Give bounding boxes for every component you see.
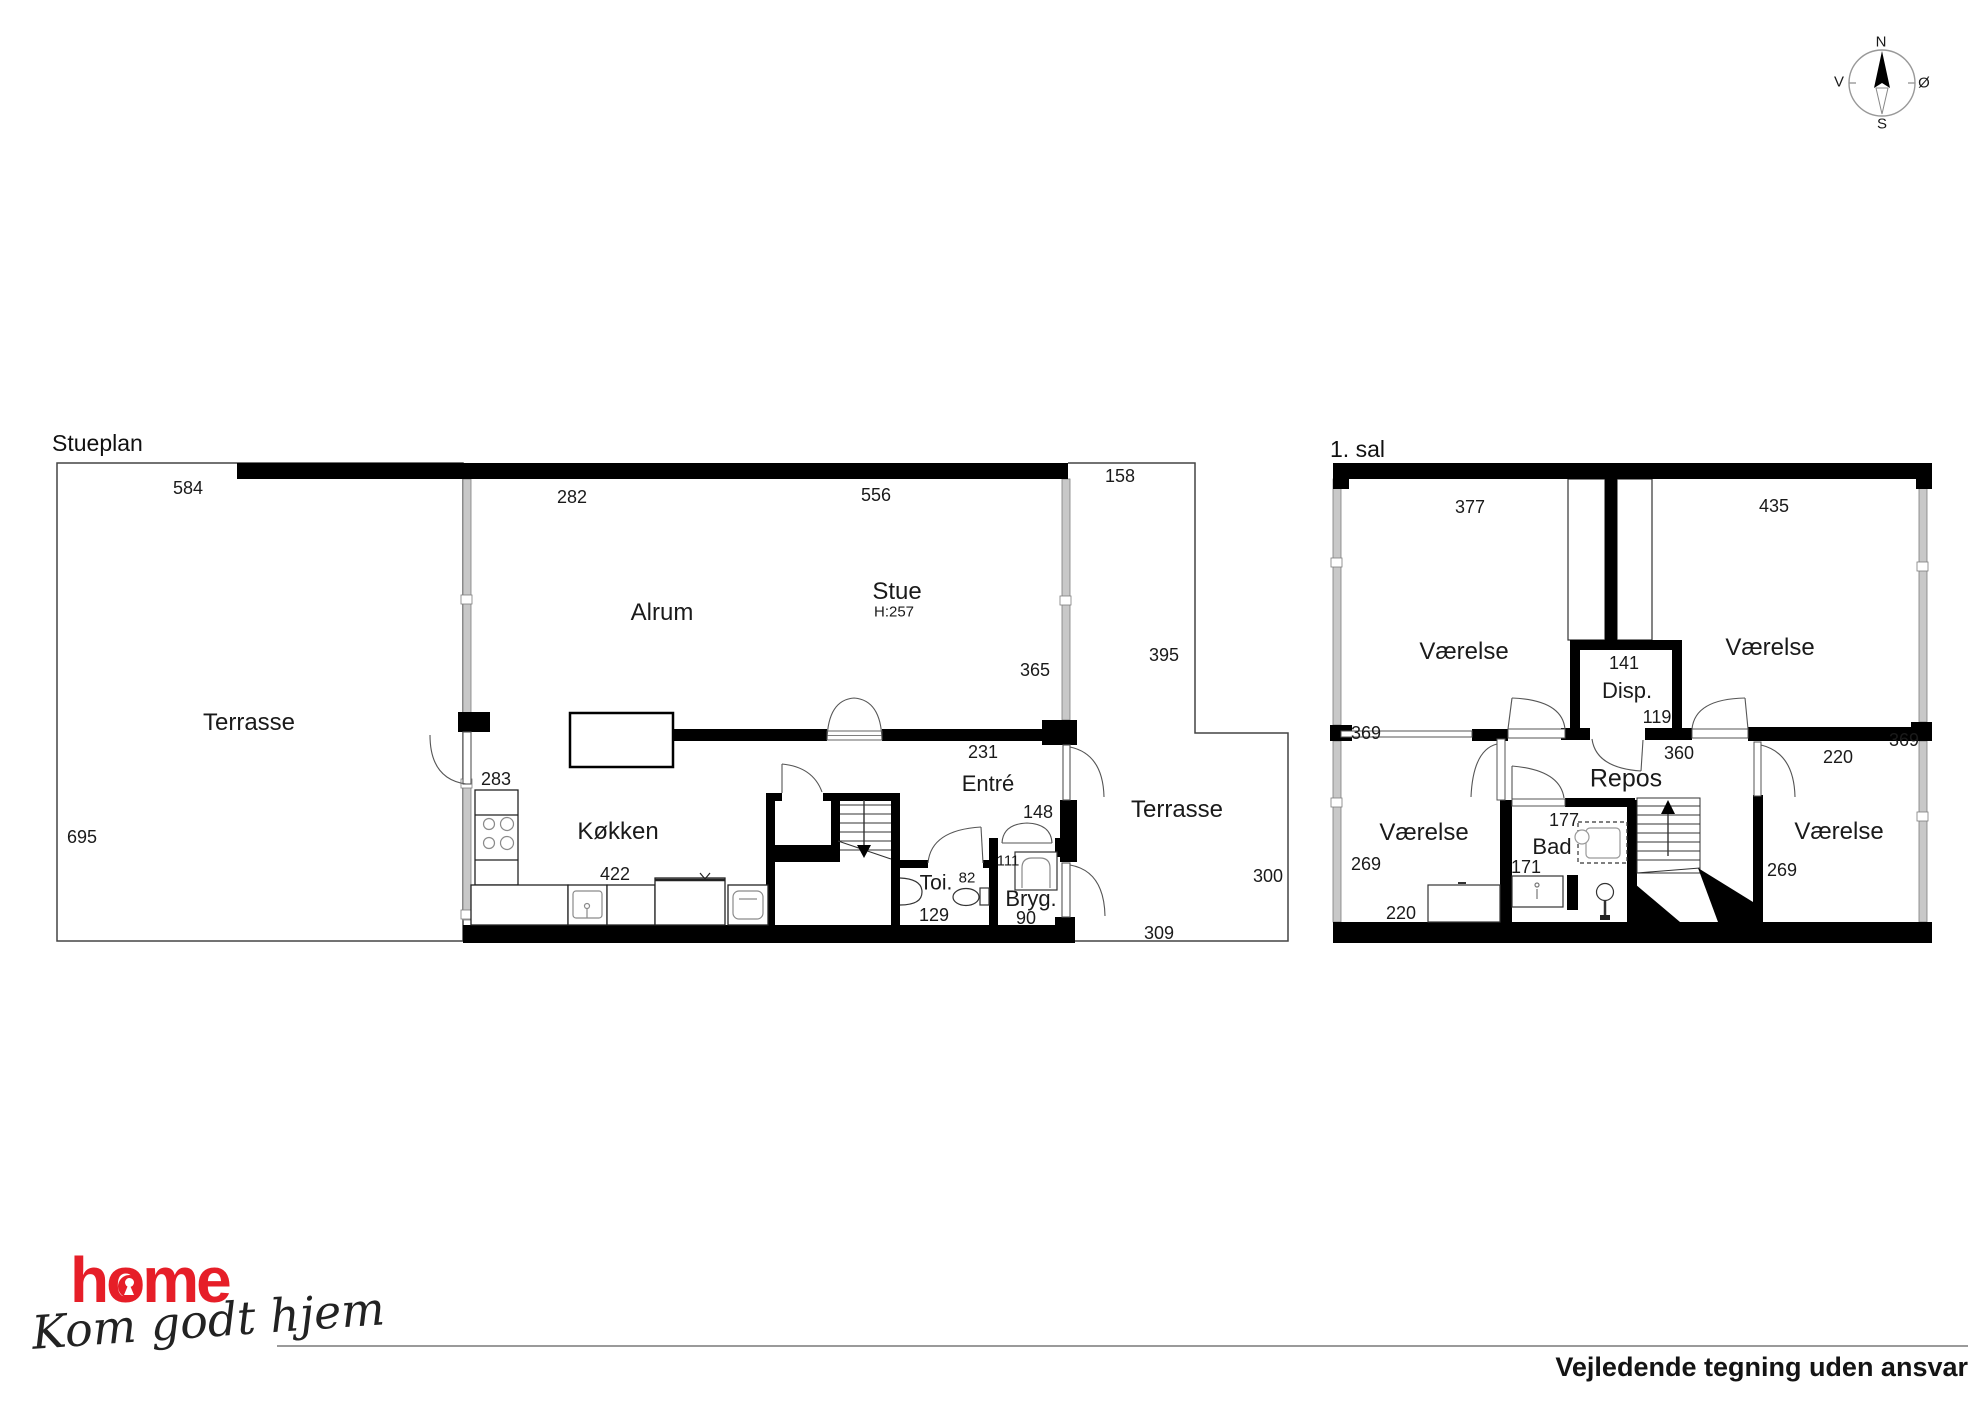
first-floor-title: 1. sal	[1330, 436, 1385, 463]
compass-north-label: N	[1876, 35, 1887, 50]
disclaimer-text: Vejledende tegning uden ansvar	[1555, 1352, 1968, 1383]
compass-needle-south	[1876, 88, 1888, 114]
dim-129: 129	[919, 906, 949, 924]
dim-584: 584	[173, 479, 203, 497]
room-label-kitchen: Køkken	[577, 820, 658, 844]
ground-floor-stairs	[838, 800, 891, 859]
dim-377: 377	[1455, 498, 1485, 516]
room-label-toilet: Toi.	[920, 873, 953, 894]
first-floor-stair-walls	[1635, 868, 1753, 922]
dim-141: 141	[1609, 654, 1639, 672]
kitchen-island	[570, 713, 673, 767]
dim-171: 171	[1511, 858, 1541, 876]
dim-300: 300	[1253, 867, 1283, 885]
room-label-bad: Bad	[1532, 836, 1571, 858]
dim-283: 283	[481, 770, 511, 788]
footer-divider-line	[277, 1345, 1968, 1347]
first-floor-walls	[1330, 463, 1932, 943]
dim-365: 365	[1020, 661, 1050, 679]
dim-269-left: 269	[1351, 855, 1381, 873]
floorplan-drawing	[0, 0, 1984, 1403]
compass-south-label: S	[1877, 117, 1887, 132]
dim-435: 435	[1759, 497, 1789, 515]
dim-282: 282	[557, 488, 587, 506]
dim-82: 82	[959, 871, 976, 886]
dim-111: 111	[997, 854, 1020, 869]
first-floor-stairs	[1637, 798, 1700, 873]
room-label-vaerelse-ne: Værelse	[1725, 636, 1814, 660]
first-floor-duct	[1568, 479, 1652, 640]
dim-556: 556	[861, 486, 891, 504]
dim-220-sw: 220	[1386, 904, 1416, 922]
compass-east-label: Ø	[1918, 76, 1930, 91]
stairs-down-arrow	[857, 845, 871, 858]
stairs-up-arrow	[1661, 800, 1675, 814]
dim-369-left: 369	[1351, 724, 1381, 742]
room-label-vaerelse-sw: Værelse	[1379, 821, 1468, 845]
home-logo-keyhole-wedge	[124, 1283, 134, 1295]
dim-148: 148	[1023, 803, 1053, 821]
dim-269-right: 269	[1767, 861, 1797, 879]
room-label-terrace-right: Terrasse	[1131, 798, 1223, 822]
dim-395: 395	[1149, 646, 1179, 664]
room-label-stue-ceiling-height: H:257	[874, 605, 914, 620]
room-label-vaerelse-nw: Værelse	[1419, 640, 1508, 664]
room-label-stue: Stue	[872, 580, 921, 604]
first-floor-partitions	[1341, 729, 1761, 806]
room-label-entry: Entré	[962, 773, 1015, 795]
dim-119: 119	[1643, 708, 1672, 726]
compass-needle-north	[1874, 51, 1890, 88]
dim-360: 360	[1664, 744, 1694, 762]
dim-220-landing: 220	[1823, 748, 1853, 766]
dim-695: 695	[67, 828, 97, 846]
dim-231: 231	[968, 743, 998, 761]
room-label-utility: Bryg.	[1005, 888, 1056, 910]
dim-369-right: 369	[1889, 731, 1919, 749]
compass-rose	[1849, 50, 1915, 116]
dim-158: 158	[1105, 467, 1135, 485]
kitchen-fixtures	[471, 790, 768, 925]
room-label-terrace-left: Terrasse	[203, 711, 295, 735]
room-label-repos: Repos	[1590, 767, 1662, 792]
dim-422: 422	[600, 865, 630, 883]
dim-177: 177	[1549, 811, 1579, 829]
compass-west-label: V	[1834, 75, 1844, 90]
ground-floor-doors	[430, 698, 1105, 917]
ground-floor-title: Stueplan	[52, 430, 143, 457]
room-label-vaerelse-se: Værelse	[1794, 820, 1883, 844]
floorplan-page: Stueplan 1. sal N S V Ø Terrasse Alrum S…	[0, 0, 1984, 1403]
room-label-alrum: Alrum	[631, 601, 694, 625]
sw-room-furniture	[1428, 883, 1500, 922]
dim-90: 90	[1016, 909, 1036, 927]
ground-floor-terrace-outlines	[57, 463, 1288, 941]
dim-309: 309	[1144, 924, 1174, 942]
ground-floor-windows	[463, 479, 1070, 920]
room-label-disp: Disp.	[1602, 680, 1652, 702]
